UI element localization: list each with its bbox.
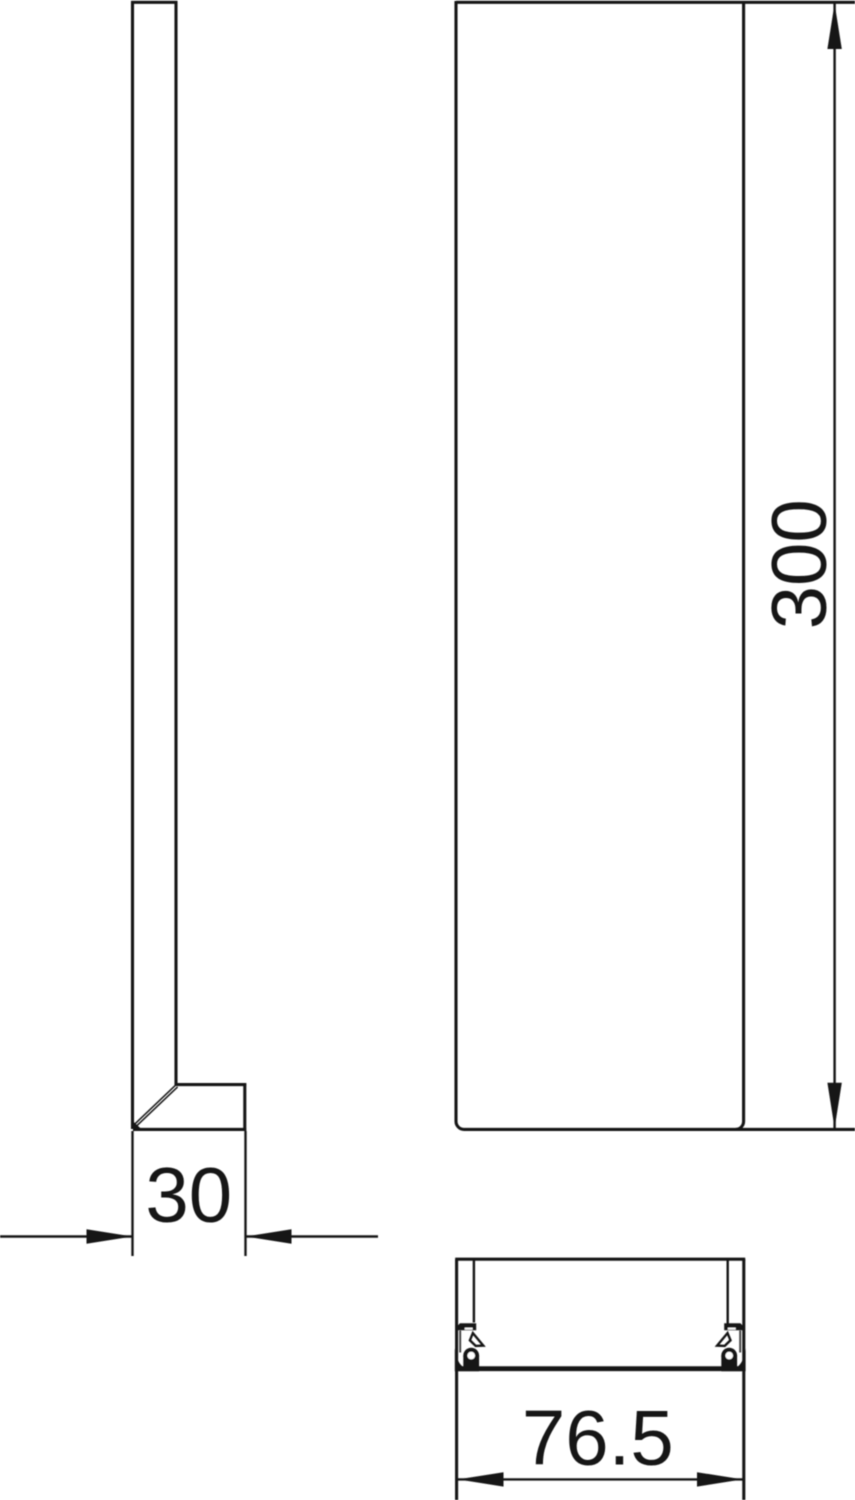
svg-text:300: 300 (754, 499, 842, 629)
svg-text:76.5: 76.5 (522, 1394, 674, 1482)
svg-text:30: 30 (145, 1151, 232, 1239)
